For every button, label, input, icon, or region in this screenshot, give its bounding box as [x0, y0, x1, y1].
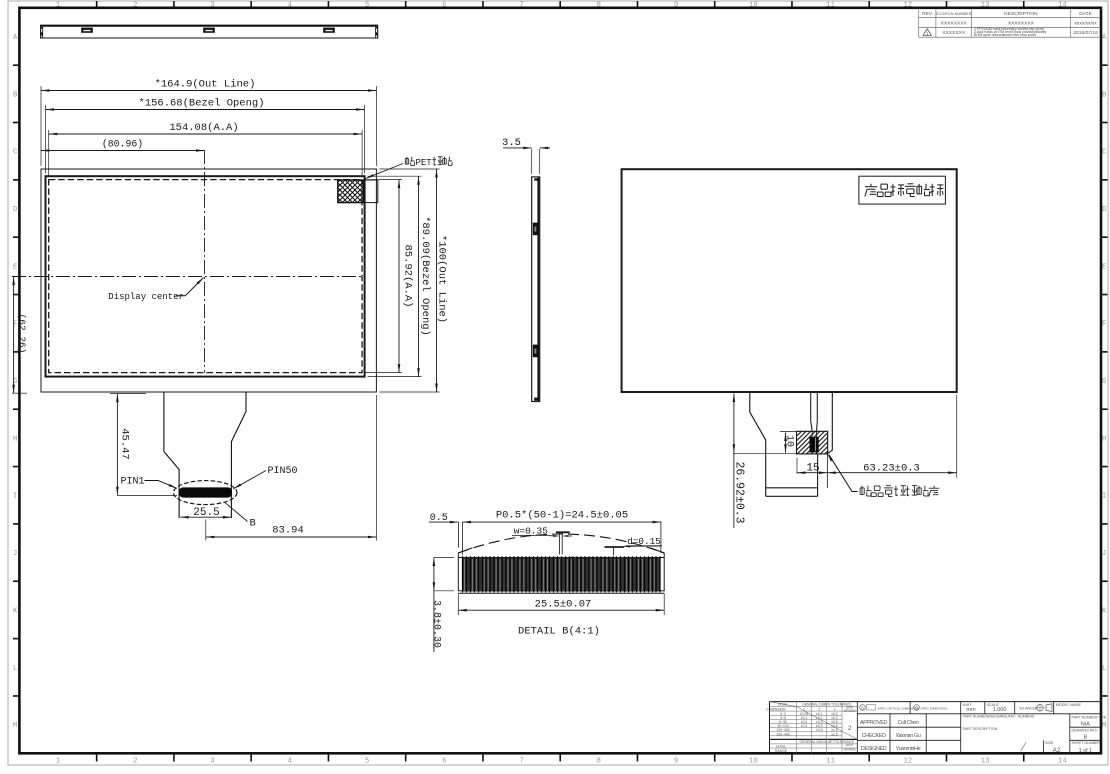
svg-text:3: 3 — [210, 758, 214, 766]
svg-text:3rd ANGLE: 3rd ANGLE — [1019, 706, 1037, 710]
svg-text:C: C — [13, 149, 18, 157]
svg-text:I: I — [13, 493, 17, 501]
svg-text:*89.09(Bezel Openg): *89.09(Bezel Openg) — [419, 216, 431, 336]
svg-text:(80.96): (80.96) — [102, 139, 143, 150]
svg-text:13: 13 — [981, 758, 990, 766]
svg-text:14: 14 — [1058, 2, 1067, 10]
svg-text:260~400: 260~400 — [776, 732, 789, 736]
svg-text:LEVEL: LEVEL — [776, 744, 787, 748]
svg-text:A2: A2 — [1053, 747, 1061, 754]
svg-text:2016/07/16: 2016/07/16 — [1073, 30, 1098, 36]
svg-text:P0.5*(50-1)=24.5±0.05: P0.5*(50-1)=24.5±0.05 — [496, 510, 628, 522]
svg-text:RANGE: RANGE — [775, 749, 788, 753]
svg-text:13: 13 — [981, 2, 990, 10]
svg-text:J: J — [13, 550, 17, 558]
svg-text:D: D — [1102, 206, 1106, 214]
svg-text:Xiaonan Gu: Xiaonan Gu — [896, 733, 921, 739]
svg-text:PART NUMBER SIZE: PART NUMBER SIZE — [1072, 716, 1107, 720]
svg-text:1 of 1: 1 of 1 — [1079, 748, 1093, 754]
svg-text:J: J — [1102, 550, 1106, 558]
svg-text:11: 11 — [826, 2, 835, 10]
svg-text:SPEC DIMENSION: SPEC DIMENSION — [921, 706, 948, 710]
svg-text:8: 8 — [597, 2, 601, 10]
svg-text:*156.68(Bezel Openg): *156.68(Bezel Openg) — [138, 98, 264, 110]
svg-text:ECO/ECN NUMBER: ECO/ECN NUMBER — [936, 11, 972, 16]
svg-text:9: 9 — [674, 2, 678, 10]
svg-text:PART NUMBER(R&D/MANUFAC. NUMBE: PART NUMBER(R&D/MANUFAC. NUMBER) — [963, 715, 1035, 719]
svg-text:26.92±0.3: 26.92±0.3 — [733, 461, 746, 523]
svg-text:10: 10 — [784, 435, 795, 447]
svg-text:2: 2 — [818, 707, 820, 711]
svg-text:E: E — [1102, 263, 1106, 271]
svg-text:3.5: 3.5 — [502, 137, 521, 149]
svg-text:DETAIL B(4:1): DETAIL B(4:1) — [518, 626, 600, 638]
svg-text:d=0.15: d=0.15 — [627, 536, 660, 547]
svg-text:XXXXXXXX: XXXXXXXX — [941, 20, 968, 26]
svg-text:±0.5: ±0.5 — [816, 728, 823, 732]
svg-text:A: A — [13, 34, 18, 42]
svg-text:6: 6 — [442, 758, 446, 766]
svg-text:1: 1 — [803, 707, 805, 711]
svg-text:BOM upon discontinued two crop: BOM upon discontinued two crop point — [974, 33, 1036, 37]
svg-text:E: E — [13, 263, 17, 271]
svg-text:1.000: 1.000 — [993, 707, 1007, 713]
svg-text:B: B — [13, 91, 18, 99]
svg-text:PET: PET — [416, 158, 433, 168]
svg-text:3: 3 — [833, 707, 835, 711]
svg-text:C: C — [1102, 149, 1107, 157]
svg-text:mm: mm — [966, 707, 976, 713]
svg-text:H: H — [13, 435, 17, 443]
svg-text:CHECKED: CHECKED — [862, 733, 886, 739]
svg-text:4: 4 — [288, 2, 292, 10]
svg-text:B: B — [1102, 91, 1107, 99]
svg-text:Colt Chen: Colt Chen — [898, 720, 919, 726]
svg-text:L: L — [1102, 665, 1106, 673]
svg-text:*164.9(Out Line): *164.9(Out Line) — [155, 79, 256, 91]
svg-text:*100(Out Line): *100(Out Line) — [436, 235, 448, 323]
svg-text:7: 7 — [519, 2, 523, 10]
svg-text:S: S — [861, 706, 864, 711]
svg-text:F: F — [1102, 321, 1106, 329]
svg-text:XXXXXXX: XXXXXXX — [942, 30, 966, 36]
svg-text:1: 1 — [56, 2, 60, 10]
svg-text:11: 11 — [826, 758, 835, 766]
svg-text:K: K — [1102, 607, 1107, 615]
svg-text:I: I — [1102, 493, 1106, 501]
svg-text:N/A: N/A — [1081, 722, 1090, 728]
svg-text:A: A — [1102, 34, 1107, 42]
svg-text:DRAWING REV.: DRAWING REV. — [1072, 729, 1098, 733]
svg-text:REV: REV — [922, 11, 933, 17]
svg-text:SIZE: SIZE — [1045, 741, 1054, 745]
svg-text:85.92(A.A): 85.92(A.A) — [401, 244, 413, 307]
svg-text:DESCRIPTION: DESCRIPTION — [1004, 11, 1038, 17]
svg-text:H: H — [1102, 435, 1106, 443]
svg-text:GRADE: GRADE — [844, 709, 857, 713]
svg-text:4: 4 — [288, 758, 292, 766]
svg-text:5: 5 — [365, 2, 369, 10]
svg-text:3.8±0.30: 3.8±0.30 — [431, 600, 442, 648]
svg-text:2: 2 — [133, 2, 137, 10]
svg-text:83.94: 83.94 — [272, 525, 304, 537]
svg-text:6: 6 — [442, 2, 446, 10]
svg-text:UNIT: UNIT — [846, 743, 854, 747]
svg-text:DESIGNED: DESIGNED — [861, 746, 887, 752]
svg-text:9: 9 — [674, 758, 678, 766]
svg-text:(62.26): (62.26) — [17, 314, 28, 354]
svg-text:G: G — [1102, 378, 1106, 386]
svg-text:PART DESCRIPTION: PART DESCRIPTION — [963, 727, 998, 731]
svg-text:Display center: Display center — [108, 292, 184, 302]
svg-text:2: 2 — [848, 725, 852, 732]
svg-text:SHEET NUMBER: SHEET NUMBER — [1072, 741, 1101, 745]
svg-text:25.5±0.07: 25.5±0.07 — [535, 599, 592, 611]
svg-text:YuanminHe: YuanminHe — [896, 746, 921, 752]
svg-text:S: S — [915, 706, 918, 711]
svg-text:MODEL NAME: MODEL NAME — [1056, 703, 1082, 707]
svg-text:SPEC CRITICAL DIMENSION: SPEC CRITICAL DIMENSION — [878, 706, 920, 710]
svg-text:D: D — [13, 206, 17, 214]
svg-text:PIN1: PIN1 — [121, 477, 145, 488]
svg-text:15: 15 — [806, 462, 819, 474]
svg-text:xxxx/xx/xx: xxxx/xx/xx — [1074, 20, 1097, 26]
svg-text:10: 10 — [749, 2, 758, 10]
svg-text:LEVEL: LEVEL — [778, 702, 789, 706]
svg-text:5: 5 — [365, 758, 369, 766]
svg-text:12: 12 — [904, 2, 913, 10]
svg-text:B: B — [1084, 735, 1088, 741]
svg-text:M: M — [13, 722, 17, 730]
svg-text:±1.5: ±1.5 — [831, 732, 838, 736]
svg-text:DIMENSION: DIMENSION — [766, 708, 786, 712]
svg-text:0.5: 0.5 — [430, 513, 448, 524]
svg-text:L: L — [13, 665, 17, 673]
svg-text:GRADE: GRADE — [844, 748, 857, 752]
svg-text:K: K — [13, 607, 18, 615]
svg-text:w=0.35: w=0.35 — [514, 526, 549, 537]
svg-text:2: 2 — [133, 758, 137, 766]
svg-text:154.08(A.A): 154.08(A.A) — [169, 122, 238, 134]
svg-text:1: 1 — [56, 758, 60, 766]
svg-text:XXXXXXXX: XXXXXXXX — [1008, 20, 1035, 26]
svg-text:PIN50: PIN50 — [268, 466, 298, 477]
svg-text:B: B — [250, 518, 256, 530]
svg-text:±0.3: ±0.3 — [801, 724, 808, 728]
svg-text:7: 7 — [519, 758, 523, 766]
svg-text:DATE: DATE — [1079, 11, 1092, 17]
svg-text:8: 8 — [597, 758, 601, 766]
svg-text:3: 3 — [210, 2, 214, 10]
svg-text:M: M — [1102, 722, 1106, 730]
svg-text:12: 12 — [904, 758, 913, 766]
svg-text:APPROVED: APPROVED — [860, 720, 888, 726]
svg-text:14: 14 — [1058, 758, 1067, 766]
svg-text:10: 10 — [749, 758, 758, 766]
svg-text:63.23±0.3: 63.23±0.3 — [863, 462, 920, 474]
svg-text:45.47: 45.47 — [118, 428, 130, 460]
svg-text:25.5: 25.5 — [193, 507, 219, 519]
